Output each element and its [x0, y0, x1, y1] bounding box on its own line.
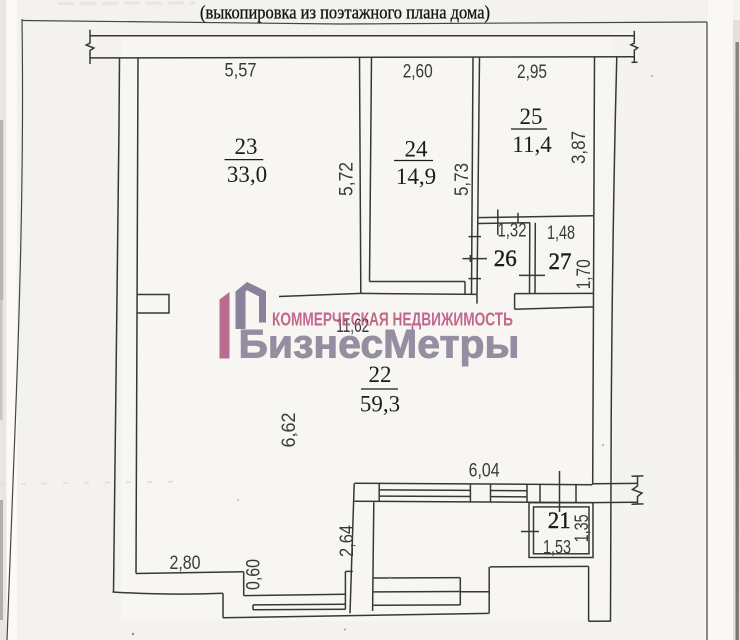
svg-text:21: 21 [548, 508, 571, 533]
svg-text:5,72: 5,72 [337, 162, 358, 196]
svg-text:2,64: 2,64 [337, 525, 358, 557]
svg-text:33,0: 33,0 [227, 162, 267, 187]
svg-text:2,60: 2,60 [403, 61, 433, 82]
svg-text:59,3: 59,3 [360, 392, 400, 417]
svg-text:1,53: 1,53 [543, 538, 571, 559]
svg-text:1,70: 1,70 [574, 259, 595, 289]
svg-text:11,4: 11,4 [512, 132, 552, 157]
svg-text:23: 23 [235, 134, 258, 159]
svg-text:14,9: 14,9 [396, 164, 436, 189]
svg-text:5,57: 5,57 [225, 61, 257, 82]
svg-text:6,04: 6,04 [469, 461, 500, 482]
svg-text:1,35: 1,35 [572, 514, 593, 542]
svg-text:5,73: 5,73 [452, 163, 473, 196]
svg-text:1,48: 1,48 [547, 223, 575, 244]
svg-text:(выкопировка из поэтажного пла: (выкопировка из поэтажного плана дома) [200, 3, 490, 24]
svg-text:24: 24 [405, 137, 429, 162]
svg-text:3,87: 3,87 [569, 131, 590, 164]
svg-text:6,62: 6,62 [279, 413, 300, 448]
svg-text:2,95: 2,95 [517, 62, 547, 83]
svg-text:0,60: 0,60 [244, 559, 265, 590]
svg-text:26: 26 [494, 246, 517, 271]
svg-text:1,32: 1,32 [498, 220, 527, 241]
svg-text:27: 27 [549, 249, 572, 274]
svg-text:БизнесМетры: БизнесМетры [239, 322, 520, 366]
svg-text:2,80: 2,80 [170, 553, 201, 574]
svg-text:25: 25 [520, 104, 543, 129]
